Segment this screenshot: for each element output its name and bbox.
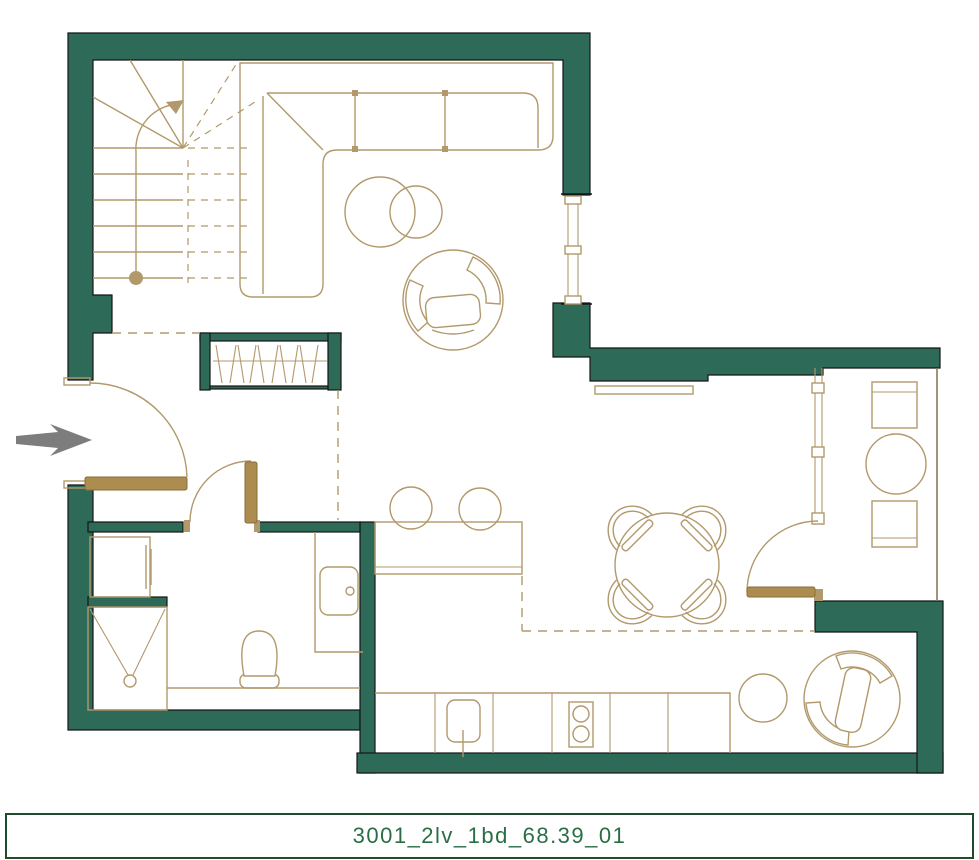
shower [88, 607, 167, 710]
armchair [403, 250, 503, 350]
entrance-arrow-icon [16, 424, 92, 456]
plan-label: 3001_2lv_1bd_68.39_01 [353, 823, 627, 849]
dining-chairs [597, 495, 736, 634]
radiator [595, 386, 693, 394]
window-living-icon [561, 194, 592, 304]
floor-plan [0, 0, 979, 812]
bathroom-door [184, 461, 260, 532]
entrance-door [64, 378, 187, 490]
coffee-tables [345, 177, 442, 247]
staircase [93, 60, 258, 285]
balcony-door [747, 521, 823, 601]
walls [68, 33, 943, 773]
washing-machine [90, 537, 151, 597]
stair-direction-arrow-icon [166, 100, 184, 114]
corner-sofa [240, 63, 553, 297]
balcony-table [866, 434, 926, 494]
dining-table [615, 513, 719, 617]
balcony-chairs [872, 382, 917, 547]
side-table [739, 674, 787, 722]
wardrobe [213, 345, 327, 383]
bar-stools [390, 487, 501, 530]
toilet [240, 631, 279, 688]
kitchen-counter [375, 693, 730, 753]
bar-counter [375, 522, 522, 574]
plan-label-box: 3001_2lv_1bd_68.39_01 [5, 813, 974, 859]
lounge-armchair [804, 651, 900, 747]
cooktop [569, 702, 593, 747]
floorplan-page: 3001_2lv_1bd_68.39_01 [0, 0, 979, 860]
kitchen-sink [447, 700, 480, 757]
